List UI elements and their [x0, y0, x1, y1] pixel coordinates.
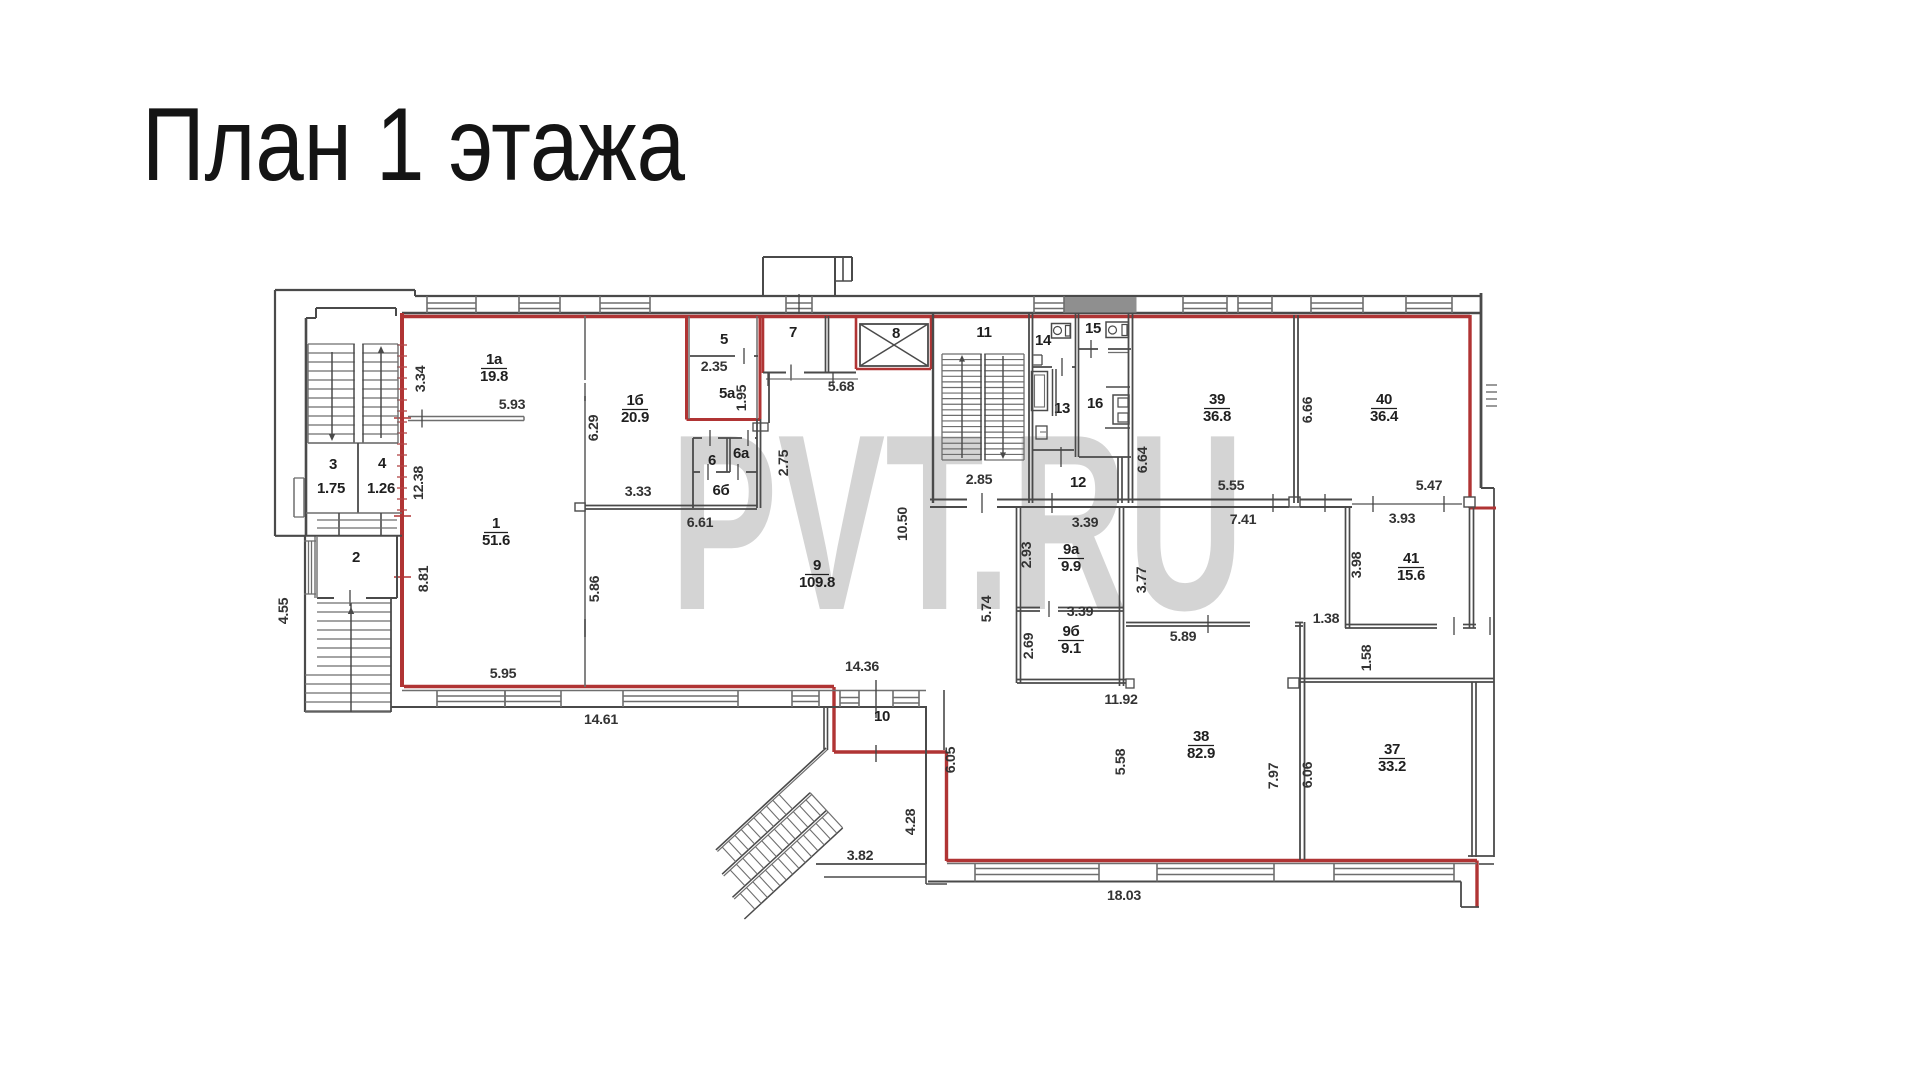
svg-text:51.6: 51.6	[482, 532, 510, 549]
svg-text:4: 4	[378, 455, 387, 472]
svg-text:12: 12	[1070, 474, 1086, 491]
svg-text:7.97: 7.97	[1266, 762, 1282, 789]
svg-text:19.8: 19.8	[480, 368, 508, 385]
svg-text:2.75: 2.75	[776, 449, 792, 476]
svg-text:5.74: 5.74	[979, 595, 995, 622]
svg-text:3.39: 3.39	[1072, 515, 1099, 531]
svg-text:16: 16	[1087, 395, 1103, 412]
svg-text:5.58: 5.58	[1113, 748, 1129, 775]
svg-text:109.8: 109.8	[799, 574, 835, 591]
svg-text:8.81: 8.81	[416, 565, 432, 592]
svg-text:1.26: 1.26	[367, 480, 395, 497]
svg-text:5.47: 5.47	[1416, 478, 1443, 494]
svg-text:2.69: 2.69	[1021, 632, 1037, 659]
svg-text:2.35: 2.35	[701, 359, 728, 375]
svg-text:3.34: 3.34	[413, 365, 429, 392]
svg-text:3.39: 3.39	[1067, 604, 1094, 620]
svg-text:1.95: 1.95	[734, 384, 750, 411]
svg-text:4.55: 4.55	[276, 597, 292, 624]
svg-text:37: 37	[1384, 741, 1400, 758]
svg-text:1: 1	[492, 515, 500, 532]
svg-text:82.9: 82.9	[1187, 745, 1215, 762]
svg-text:36.4: 36.4	[1370, 408, 1399, 425]
svg-text:1.38: 1.38	[1313, 611, 1340, 627]
svg-text:5.93: 5.93	[499, 397, 526, 413]
svg-text:2.85: 2.85	[966, 472, 993, 488]
svg-text:6б: 6б	[712, 482, 729, 499]
svg-text:11.92: 11.92	[1104, 692, 1138, 708]
svg-text:38: 38	[1193, 728, 1209, 745]
svg-text:5.86: 5.86	[587, 575, 603, 602]
svg-text:15.6: 15.6	[1397, 567, 1425, 584]
svg-text:6.05: 6.05	[943, 746, 959, 773]
svg-text:6.29: 6.29	[586, 414, 602, 441]
svg-text:5.68: 5.68	[828, 379, 855, 395]
svg-text:3.98: 3.98	[1349, 551, 1365, 578]
svg-text:14.61: 14.61	[584, 712, 618, 728]
svg-text:3.77: 3.77	[1134, 566, 1150, 593]
svg-text:41: 41	[1403, 550, 1419, 567]
svg-text:40: 40	[1376, 391, 1392, 408]
svg-text:5.89: 5.89	[1170, 629, 1197, 645]
svg-text:39: 39	[1209, 391, 1225, 408]
svg-text:1а: 1а	[486, 351, 503, 368]
svg-text:20.9: 20.9	[621, 409, 649, 426]
svg-text:6.06: 6.06	[1300, 761, 1316, 788]
svg-text:6.64: 6.64	[1135, 446, 1151, 473]
svg-text:11: 11	[976, 324, 991, 341]
svg-text:6: 6	[708, 452, 716, 469]
svg-text:12.38: 12.38	[411, 466, 427, 500]
svg-text:3.82: 3.82	[847, 848, 874, 864]
svg-text:15: 15	[1085, 320, 1101, 337]
svg-text:14.36: 14.36	[845, 659, 879, 675]
svg-text:7.41: 7.41	[1230, 512, 1257, 528]
svg-text:9б: 9б	[1062, 623, 1079, 640]
svg-text:2.93: 2.93	[1019, 541, 1035, 568]
svg-text:3.33: 3.33	[625, 484, 652, 500]
svg-text:5: 5	[720, 331, 728, 348]
svg-text:9: 9	[813, 557, 821, 574]
svg-text:1б: 1б	[626, 392, 643, 409]
svg-text:36.8: 36.8	[1203, 408, 1231, 425]
svg-text:9а: 9а	[1063, 541, 1080, 558]
svg-text:4.28: 4.28	[903, 808, 919, 835]
svg-text:6.66: 6.66	[1300, 396, 1316, 423]
svg-text:33.2: 33.2	[1378, 758, 1406, 775]
svg-text:14: 14	[1035, 332, 1052, 349]
svg-text:6.61: 6.61	[687, 515, 714, 531]
svg-text:План 1 этажа: План 1 этажа	[142, 87, 685, 203]
svg-text:10.50: 10.50	[895, 507, 911, 541]
svg-text:18.03: 18.03	[1107, 888, 1141, 904]
svg-text:5.55: 5.55	[1218, 478, 1245, 494]
svg-text:8: 8	[892, 325, 900, 342]
svg-text:3.93: 3.93	[1389, 511, 1416, 527]
svg-text:9.1: 9.1	[1061, 640, 1081, 657]
svg-text:3: 3	[329, 456, 337, 473]
svg-text:2: 2	[352, 549, 360, 566]
svg-text:1.75: 1.75	[317, 480, 345, 497]
svg-text:9.9: 9.9	[1061, 558, 1081, 575]
svg-text:5.95: 5.95	[490, 666, 517, 682]
svg-text:6а: 6а	[733, 445, 750, 462]
svg-text:7: 7	[789, 324, 797, 341]
svg-text:10: 10	[874, 708, 890, 725]
svg-text:1.58: 1.58	[1359, 644, 1375, 671]
